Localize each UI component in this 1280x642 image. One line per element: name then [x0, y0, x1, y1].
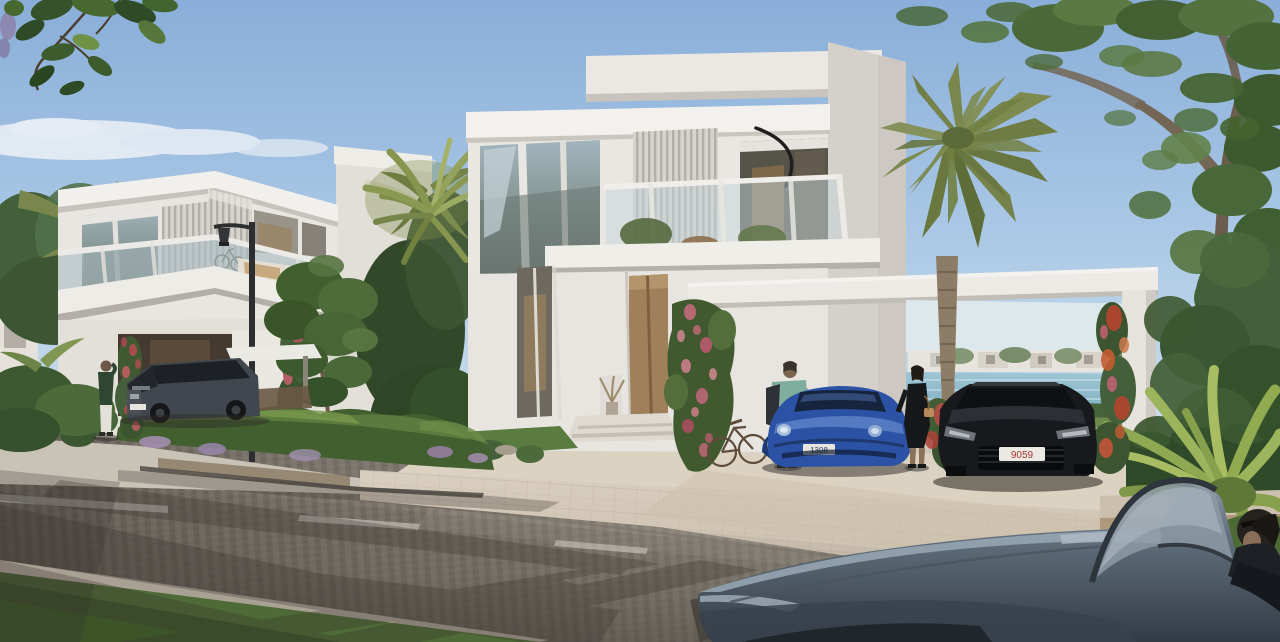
svg-text:9059: 9059 [1011, 450, 1034, 461]
